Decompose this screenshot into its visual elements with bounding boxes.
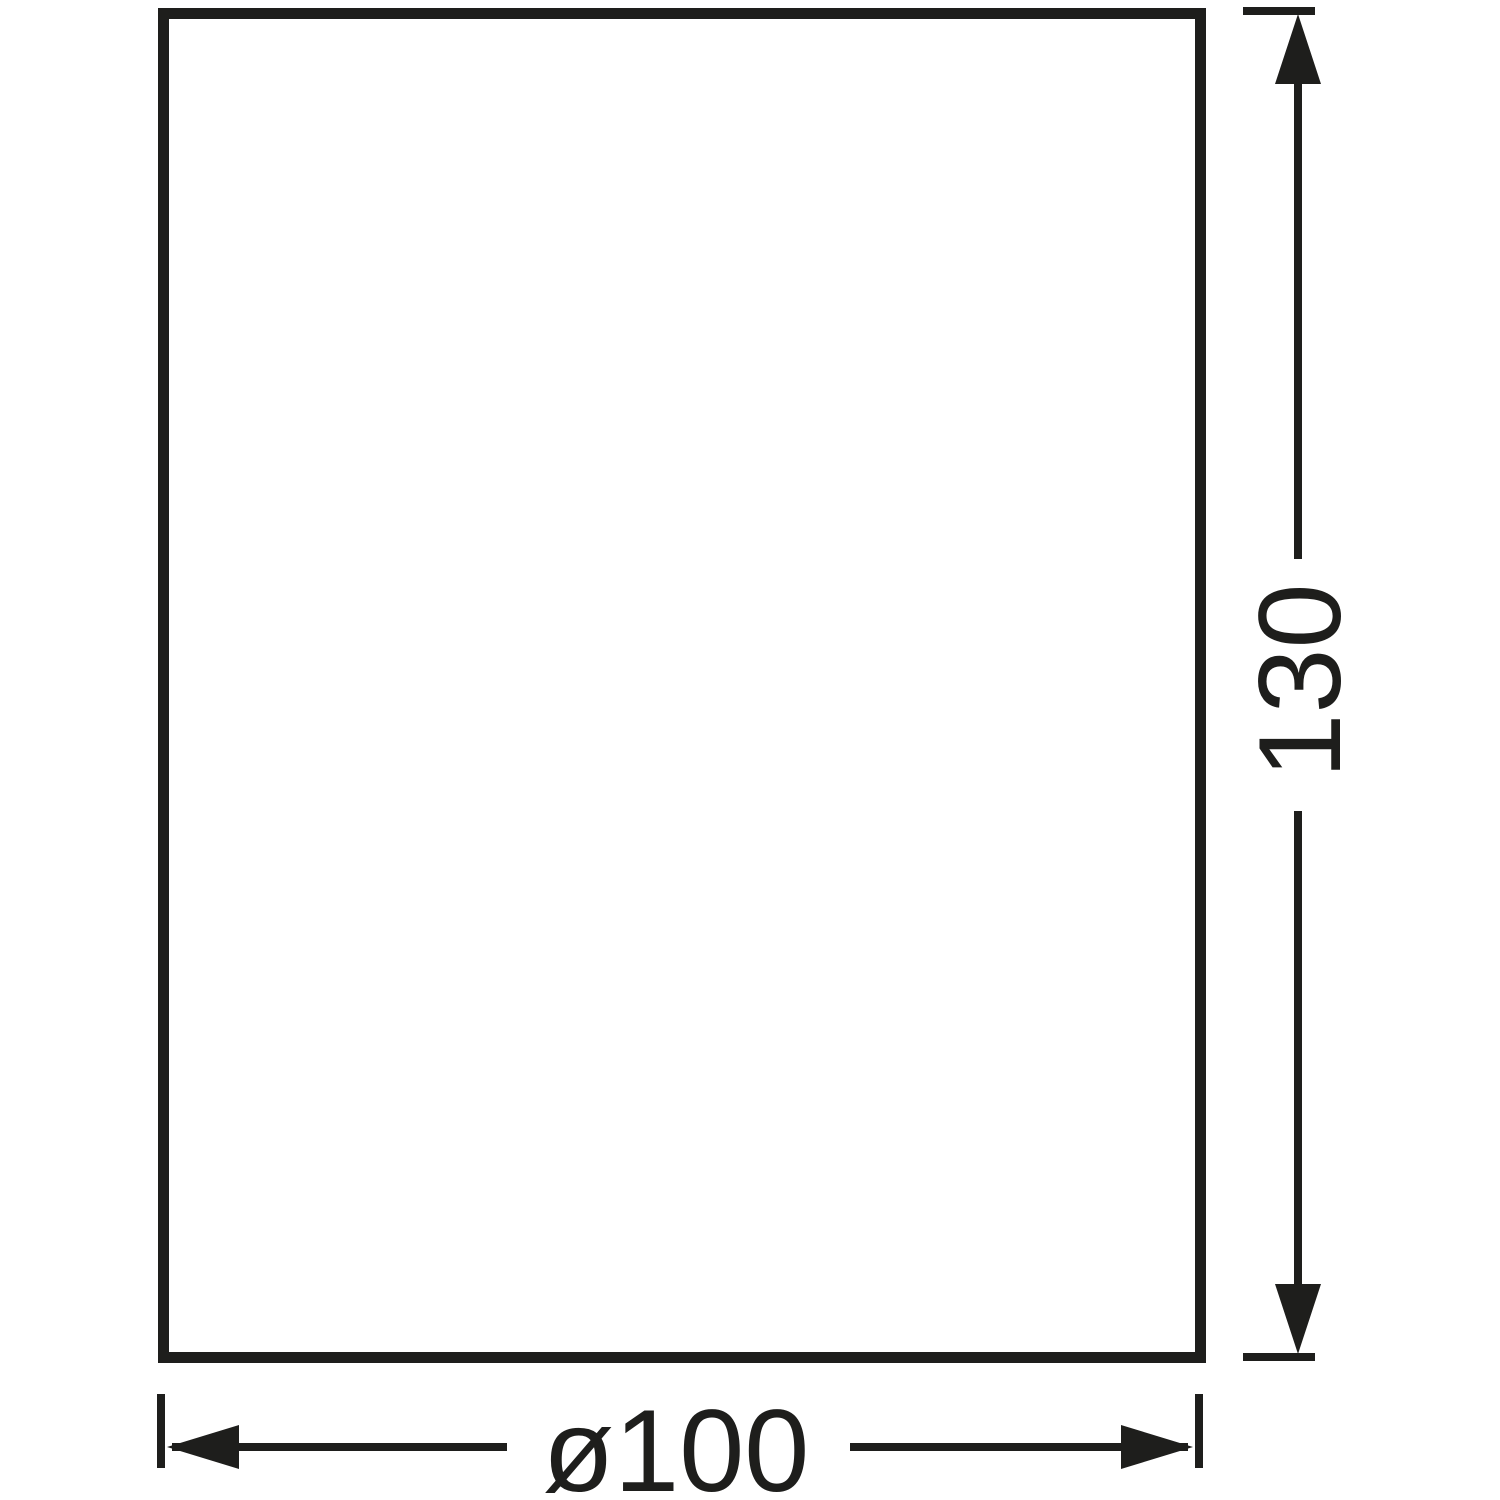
part-outline-rect bbox=[164, 14, 1201, 1358]
technical-dimension-drawing: 130 ø100 bbox=[0, 0, 1500, 1500]
width-arrowhead-left-icon bbox=[167, 1425, 239, 1469]
height-arrowhead-down-icon bbox=[1275, 1284, 1321, 1354]
width-arrowhead-right-icon bbox=[1121, 1425, 1193, 1469]
fill-geometry-group: 130 ø100 bbox=[167, 14, 1365, 1500]
stroke-geometry-group bbox=[161, 11, 1315, 1468]
width-dimension-label: ø100 bbox=[543, 1385, 810, 1500]
dimension-drawing-canvas: 130 ø100 bbox=[0, 0, 1500, 1500]
height-dimension-label: 130 bbox=[1234, 583, 1365, 778]
height-arrowhead-up-icon bbox=[1275, 14, 1321, 84]
